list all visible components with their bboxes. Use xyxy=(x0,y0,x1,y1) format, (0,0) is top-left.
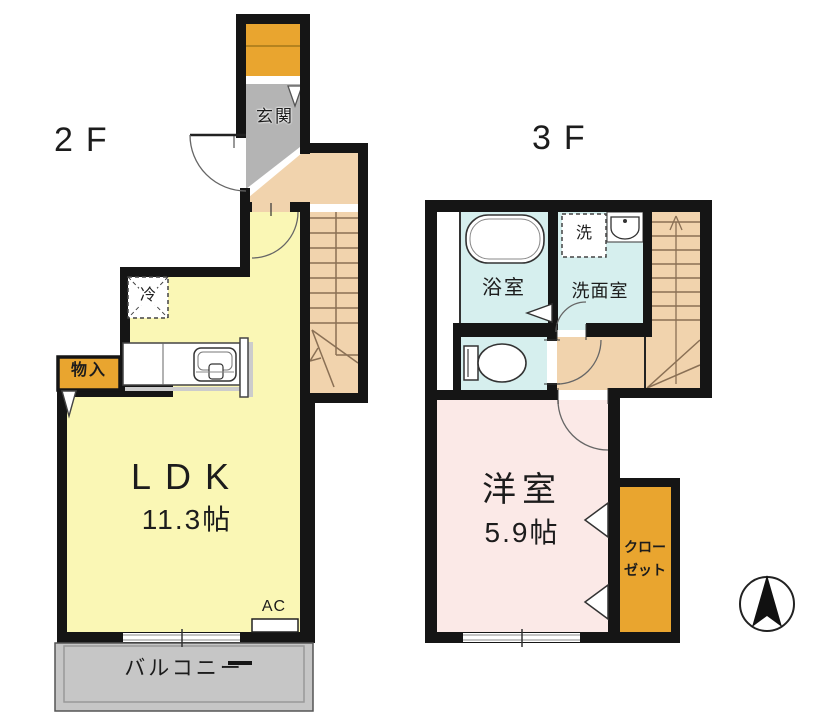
label-ldk: LDK xyxy=(112,458,262,496)
compass-north-icon xyxy=(740,575,794,631)
label-closet-line1: クロー xyxy=(618,540,672,555)
label-storage: 物入 xyxy=(58,363,120,380)
entrance-porch xyxy=(246,24,300,76)
label-genkan: 玄関 xyxy=(248,108,302,126)
label-ac: AC xyxy=(250,599,298,616)
floor-plan: 2F 3F 玄関 冷 物入 LDK 11.3帖 AC バルコニー 浴室 洗 洗面… xyxy=(0,0,834,723)
room-western xyxy=(437,400,608,632)
floor-plan-drawing xyxy=(0,0,834,723)
label-western-room-size: 5.9帖 xyxy=(445,518,599,547)
kitchen-sink-icon xyxy=(194,348,236,381)
label-washer: 洗 xyxy=(562,226,606,243)
label-western-room: 洋室 xyxy=(452,473,592,509)
label-refrigerator: 冷 xyxy=(139,288,157,305)
label-balcony: バルコニー xyxy=(88,658,280,680)
label-floor-3f: 3F xyxy=(532,121,598,157)
room-closet xyxy=(620,487,671,632)
label-floor-2f: 2F xyxy=(54,123,120,159)
kitchen-counter-icon xyxy=(123,338,253,397)
label-ldk-size: 11.3帖 xyxy=(104,505,270,534)
label-closet-line2: ゼット xyxy=(618,563,672,578)
floor-3f xyxy=(425,200,712,647)
entrance-door-arc-icon xyxy=(190,135,246,191)
toilet-icon xyxy=(464,344,526,382)
label-washroom: 洗面室 xyxy=(554,282,646,301)
label-bathroom: 浴室 xyxy=(460,278,548,299)
washbasin-icon xyxy=(607,212,643,242)
ac-unit-box xyxy=(252,619,298,632)
bathtub-icon xyxy=(466,215,544,263)
